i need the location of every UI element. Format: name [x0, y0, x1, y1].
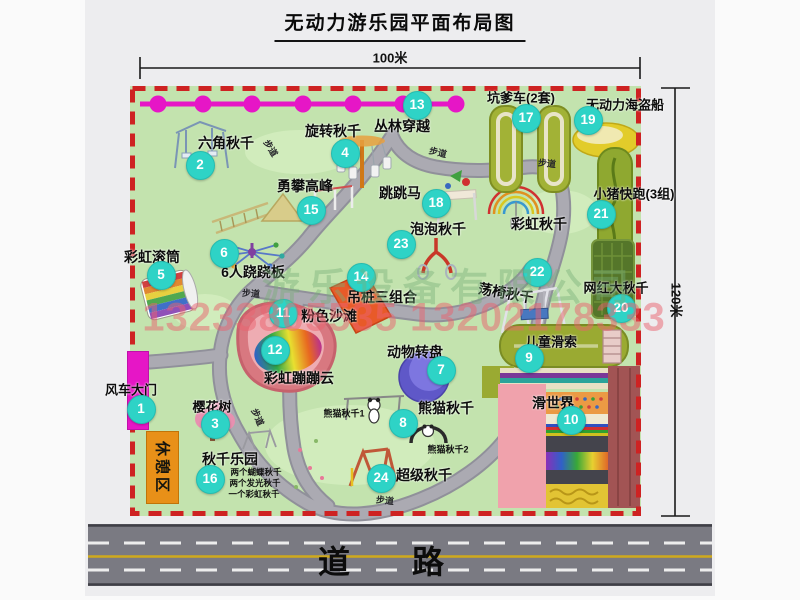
road-label: 道路	[318, 537, 506, 583]
attraction-label-17: 坑爹车(2套)	[487, 88, 555, 107]
swing-park-item-3: 一个彩虹秋千	[228, 488, 279, 500]
rest-area-label: 休憩区	[152, 440, 173, 494]
attraction-label-18: 跳跳马	[379, 183, 421, 203]
attraction-label-23: 泡泡秋千	[410, 219, 466, 239]
attraction-badge-1: 1	[127, 395, 156, 424]
attraction-badge-10: 10	[557, 406, 586, 435]
attraction-label-4: 旋转秋千	[305, 121, 361, 141]
rest-area-zone: 休憩区	[146, 431, 179, 504]
attraction-badge-24: 24	[367, 464, 396, 493]
attraction-label-1: 风车大门	[105, 380, 157, 399]
watermark-phone: 13233805535 13202178333	[142, 296, 666, 341]
attraction-badge-5: 5	[147, 261, 176, 290]
walkway-label: 步道	[537, 156, 556, 171]
attraction-badge-18: 18	[422, 189, 451, 218]
attraction-badge-4: 4	[331, 139, 360, 168]
attraction-badge-21: 21	[587, 200, 616, 229]
attraction-badge-17: 17	[512, 104, 541, 133]
attraction-label-2: 六角秋千	[198, 133, 254, 153]
attraction-badge-23: 23	[387, 230, 416, 259]
attraction-badge-8: 8	[389, 409, 418, 438]
dimension-height-label: 120米	[668, 283, 687, 318]
attraction-badge-7: 7	[427, 356, 456, 385]
attraction-label-8: 熊猫秋千	[418, 398, 474, 418]
attraction-badge-16: 16	[196, 465, 225, 494]
slide-world-icon	[482, 366, 640, 508]
attraction-label-15: 勇攀高峰	[277, 176, 333, 196]
walkway-label: 步道	[375, 493, 394, 508]
attraction-badge-3: 3	[201, 410, 230, 439]
panda-swing-1-label: 熊猫秋千1	[323, 407, 364, 420]
attraction-label-12: 彩虹蹦蹦云	[264, 368, 334, 388]
attraction-badge-2: 2	[186, 151, 215, 180]
attraction-badge-6: 6	[210, 239, 239, 268]
attraction-badge-13: 13	[403, 91, 432, 120]
dimension-width-label: 100米	[373, 48, 408, 67]
attraction-badge-9: 9	[515, 344, 544, 373]
attraction-label-24: 超级秋千	[396, 465, 452, 485]
rainbow-swing-label: 彩虹秋千	[511, 214, 567, 234]
attraction-badge-19: 19	[574, 106, 603, 135]
attraction-badge-15: 15	[297, 196, 326, 225]
panda-swing-2-label: 熊猫秋千2	[427, 443, 468, 456]
park-layout-map: 休憩区 无动力游乐园平面布局图 100米 120米 道路 风车大门 六角秋千 樱…	[0, 0, 800, 600]
page-title: 无动力游乐园平面布局图	[274, 8, 525, 42]
